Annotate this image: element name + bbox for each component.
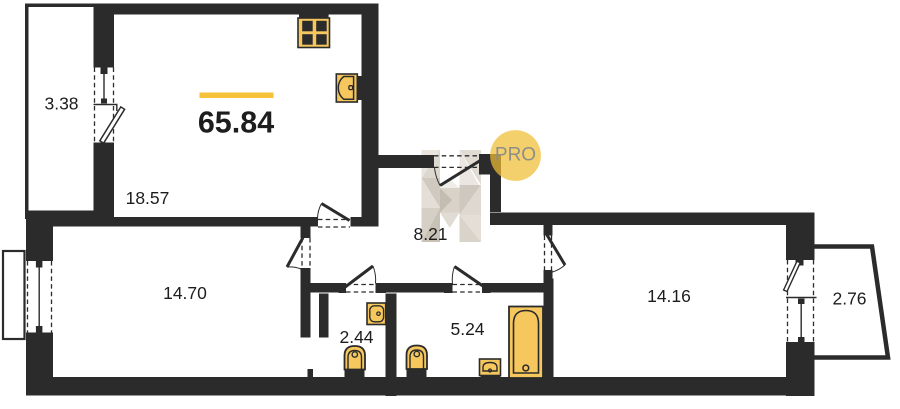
svg-text:PRO: PRO xyxy=(495,145,536,166)
svg-text:2.76: 2.76 xyxy=(832,289,866,309)
svg-text:3.38: 3.38 xyxy=(44,94,78,114)
svg-text:2.44: 2.44 xyxy=(339,327,373,347)
svg-text:18.57: 18.57 xyxy=(126,188,170,208)
svg-text:5.24: 5.24 xyxy=(450,319,484,339)
svg-text:65.84: 65.84 xyxy=(198,106,274,140)
svg-text:14.16: 14.16 xyxy=(647,286,691,306)
svg-text:8.21: 8.21 xyxy=(413,224,447,244)
svg-text:14.70: 14.70 xyxy=(163,283,207,303)
